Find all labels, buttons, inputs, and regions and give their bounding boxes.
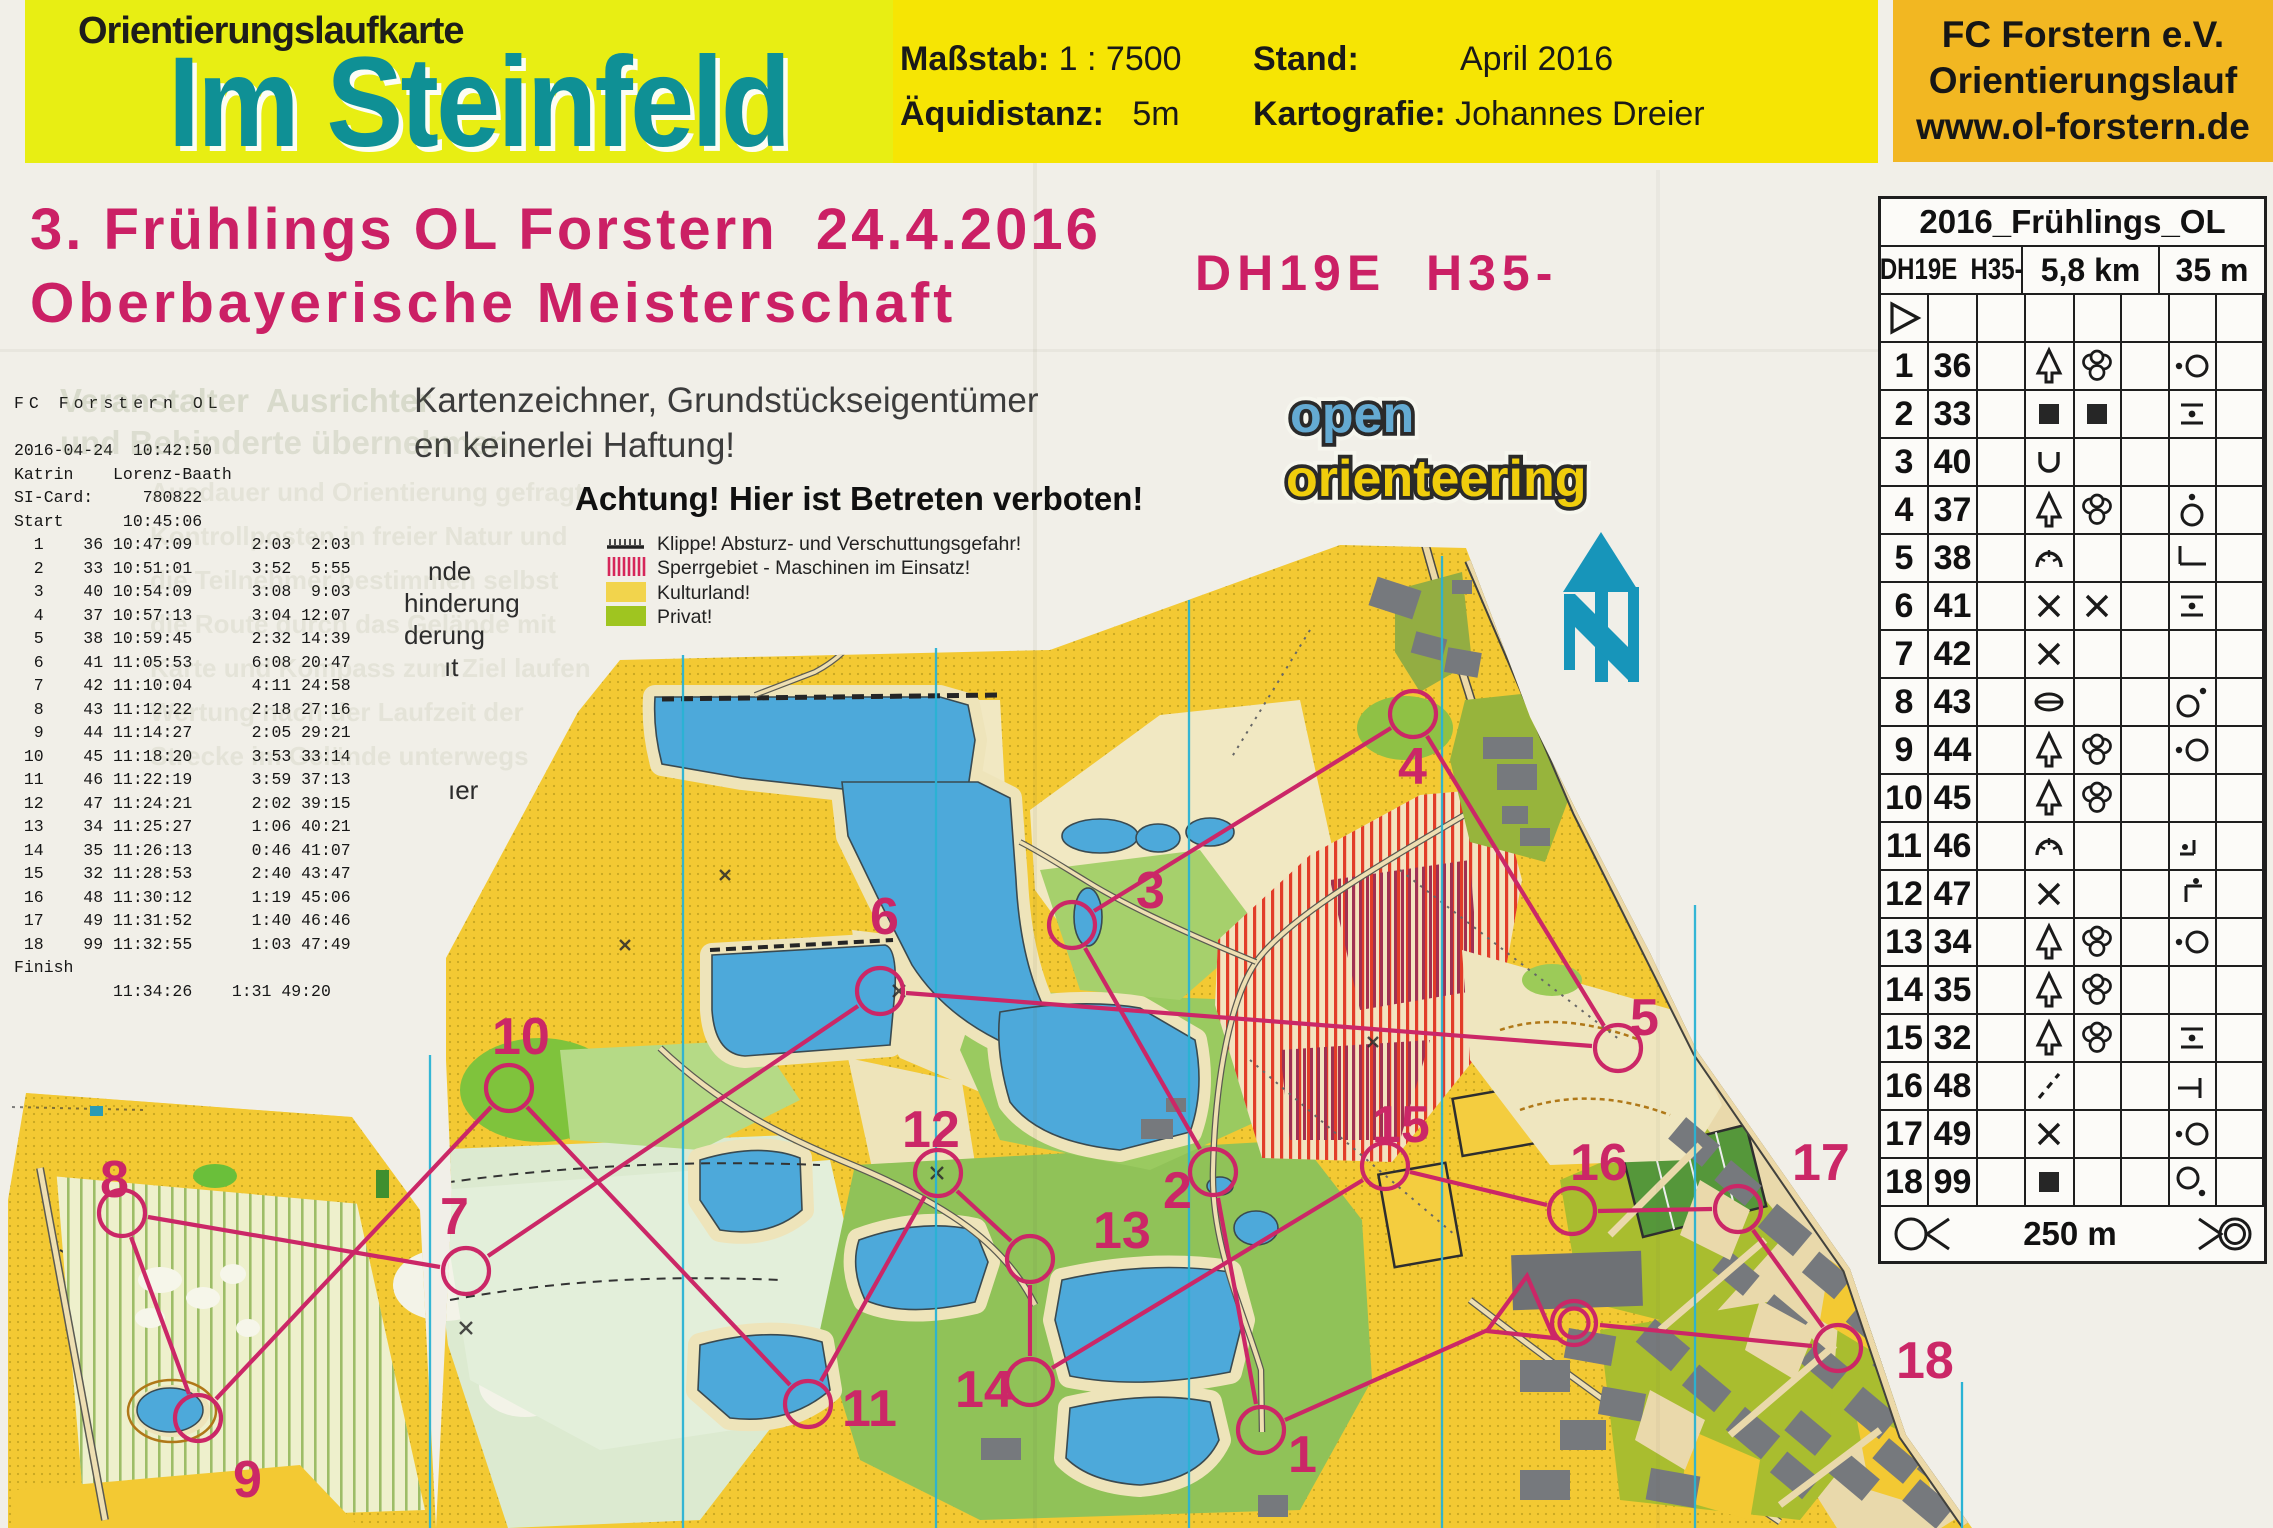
svg-text:18: 18 <box>1896 1332 1954 1390</box>
svg-text:13: 13 <box>1093 1202 1151 1260</box>
svg-text:14: 14 <box>955 1361 1013 1419</box>
svg-text:1: 1 <box>1288 1426 1317 1484</box>
svg-text:3: 3 <box>1136 862 1165 920</box>
svg-text:12: 12 <box>902 1101 960 1159</box>
svg-text:10: 10 <box>492 1008 550 1066</box>
svg-text:2: 2 <box>1163 1162 1192 1220</box>
svg-text:17: 17 <box>1792 1134 1850 1192</box>
svg-text:15: 15 <box>1372 1096 1430 1154</box>
svg-text:6: 6 <box>870 888 899 946</box>
svg-text:16: 16 <box>1570 1134 1628 1192</box>
svg-text:7: 7 <box>440 1188 469 1246</box>
svg-text:open: open <box>1290 386 1414 444</box>
svg-text:5: 5 <box>1630 989 1659 1047</box>
svg-text:9: 9 <box>233 1451 262 1509</box>
svg-text:8: 8 <box>100 1151 129 1209</box>
svg-text:4: 4 <box>1398 738 1427 796</box>
svg-text:11: 11 <box>842 1380 897 1438</box>
svg-text:orienteering: orienteering <box>1286 450 1587 508</box>
